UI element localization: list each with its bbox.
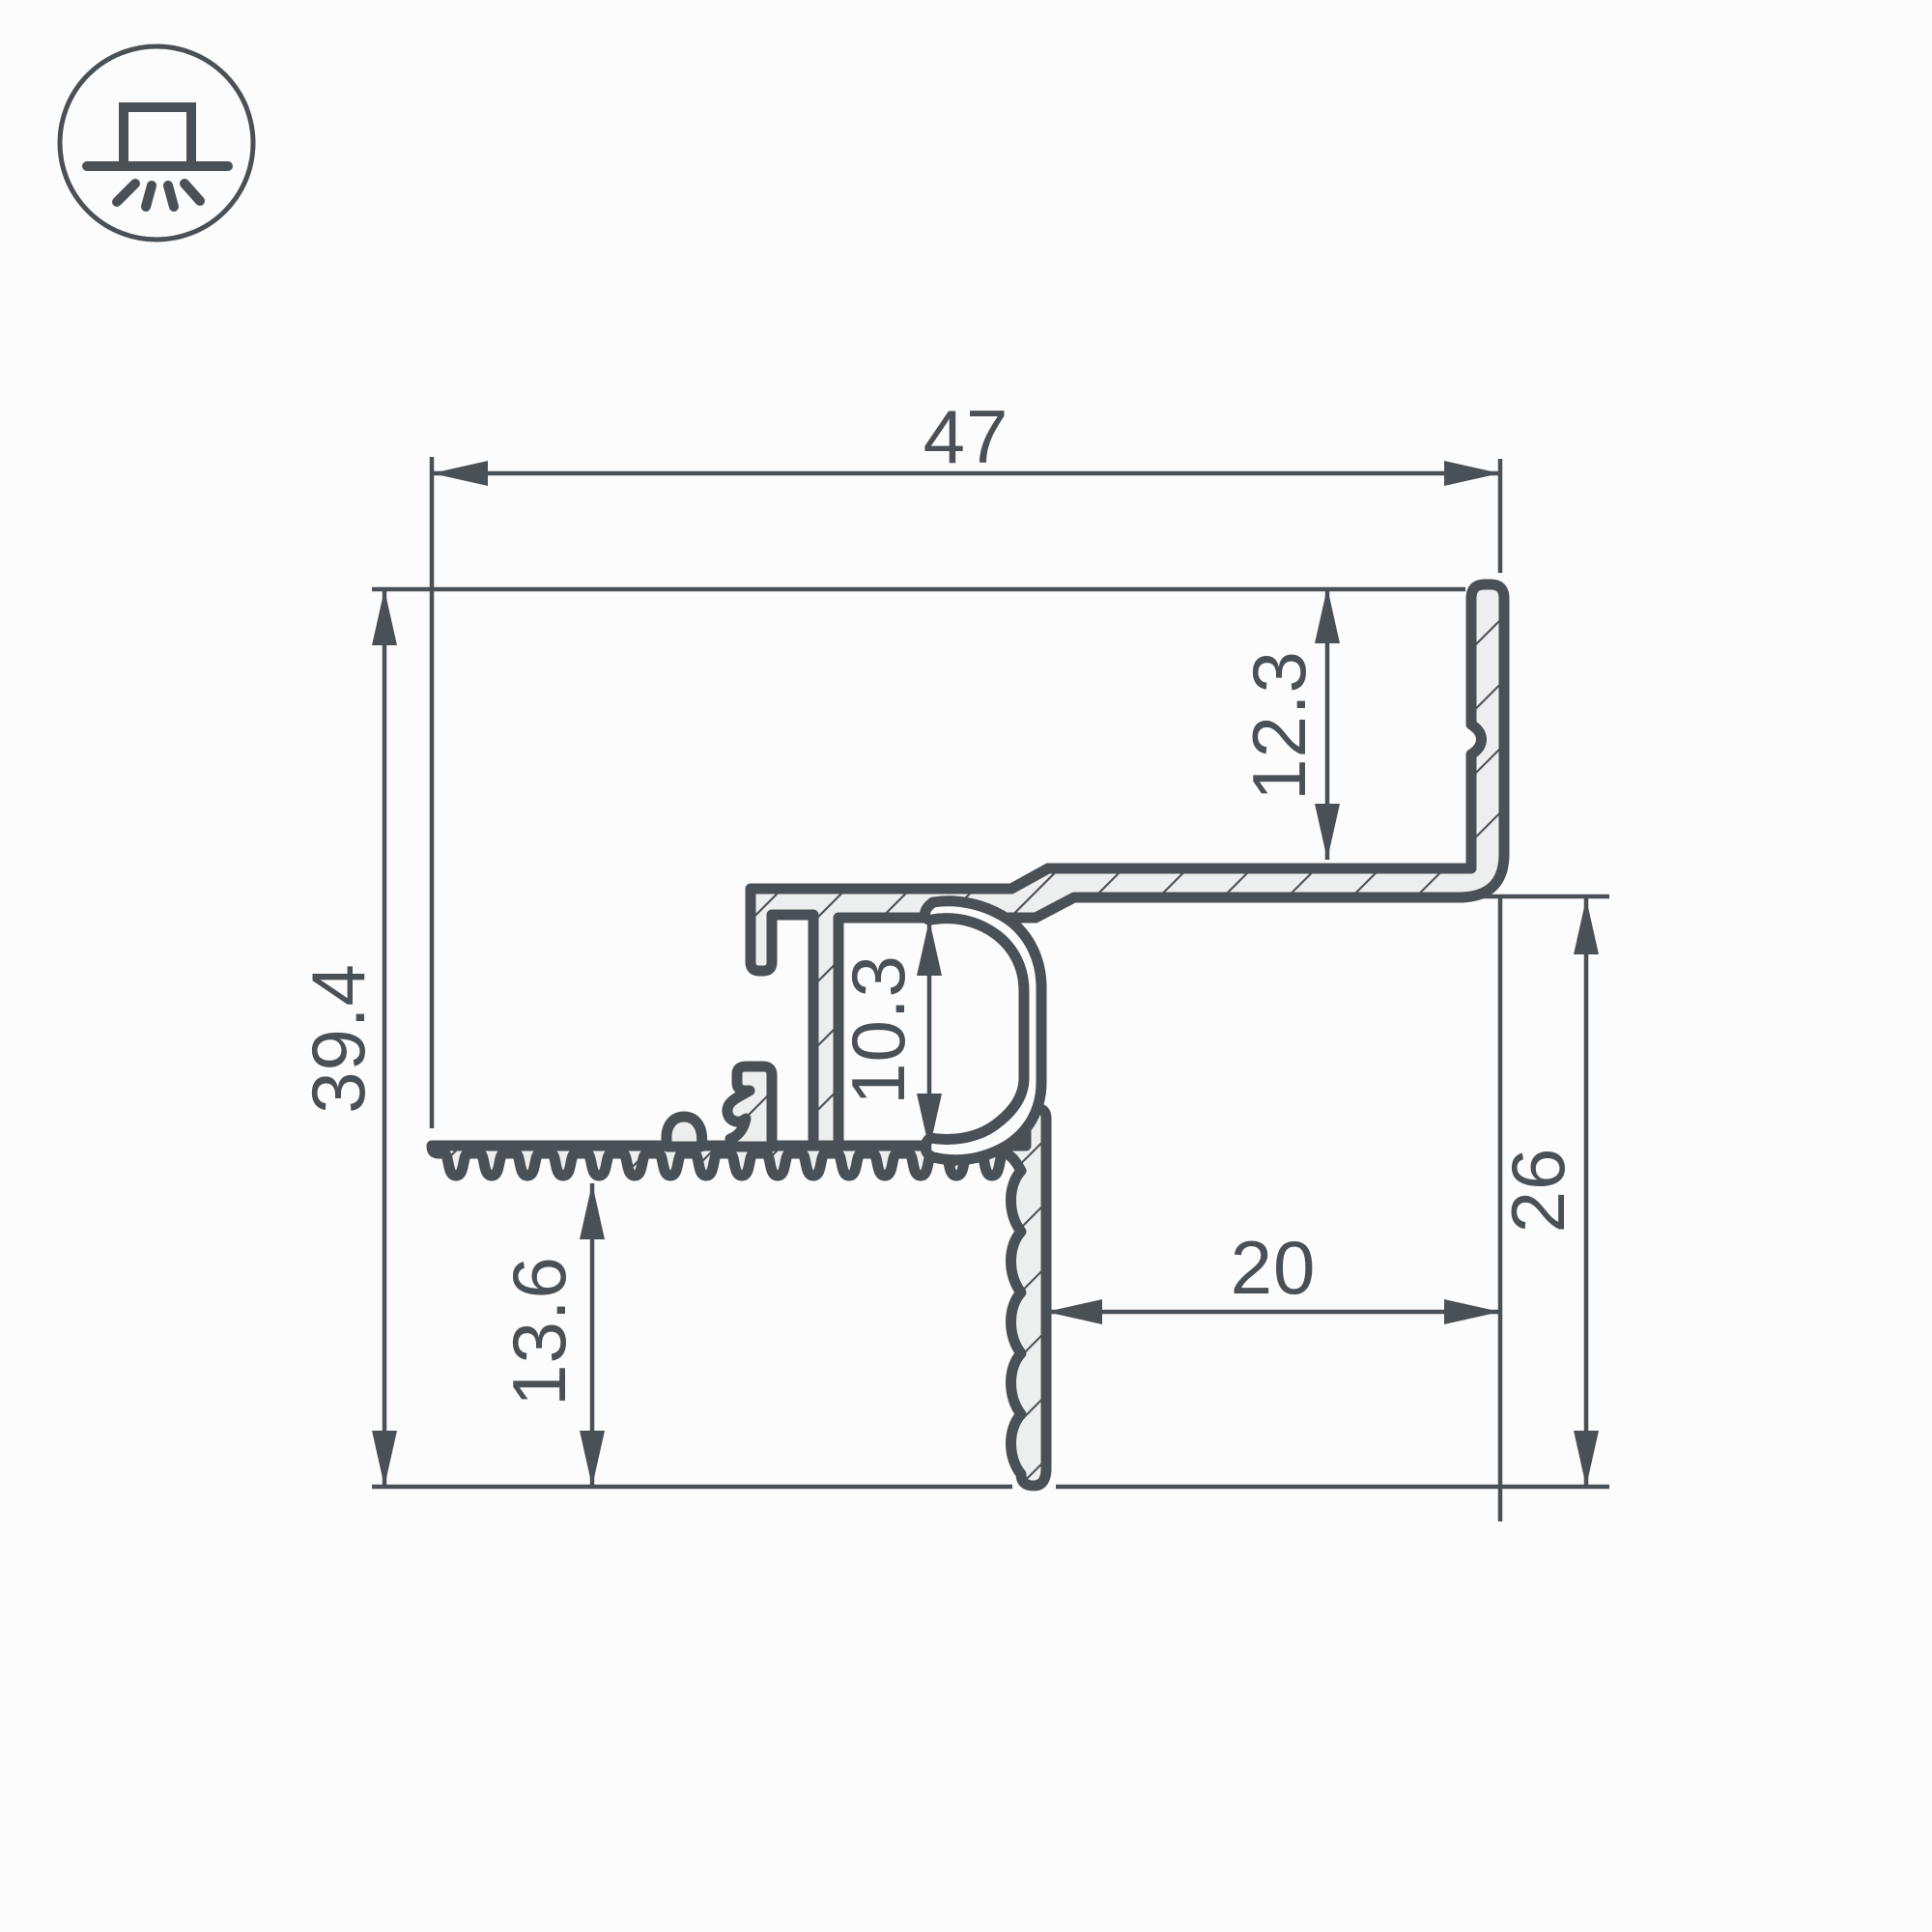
recessed-light-icon [60,46,253,240]
dim-label-total-height: 39.4 [296,963,381,1114]
dimension-channel-inner-height: 10.3 [836,920,942,1150]
technical-drawing: 47 39.4 12.3 10.3 26 20 13.6 [0,0,1932,1932]
profile-cover [925,901,1042,1160]
dim-label-lower-left-height: 13.6 [497,1256,582,1406]
profile-grip-bump [667,1117,702,1147]
dimension-right-height: 26 [1495,898,1599,1487]
icon-circle [60,46,253,240]
dimension-flange-height: 12.3 [1236,587,1340,860]
dim-label-bottom-offset: 20 [1231,1225,1317,1310]
drawing-canvas: 47 39.4 12.3 10.3 26 20 13.6 [0,0,1932,1932]
icon-light-rays [117,184,200,207]
icon-lamp-box [124,107,191,166]
dimension-total-width: 47 [432,394,1500,486]
dim-label-channel-inner-height: 10.3 [836,954,921,1105]
dim-label-flange-height: 12.3 [1236,650,1321,801]
dim-label-right-height: 26 [1495,1148,1580,1234]
dimension-lower-left-height: 13.6 [497,1183,605,1487]
dimension-bottom-offset: 20 [1046,1225,1500,1324]
dimension-total-height: 39.4 [296,589,397,1487]
dim-label-total-width: 47 [923,394,1009,479]
profile-grip-rib [727,1066,772,1147]
